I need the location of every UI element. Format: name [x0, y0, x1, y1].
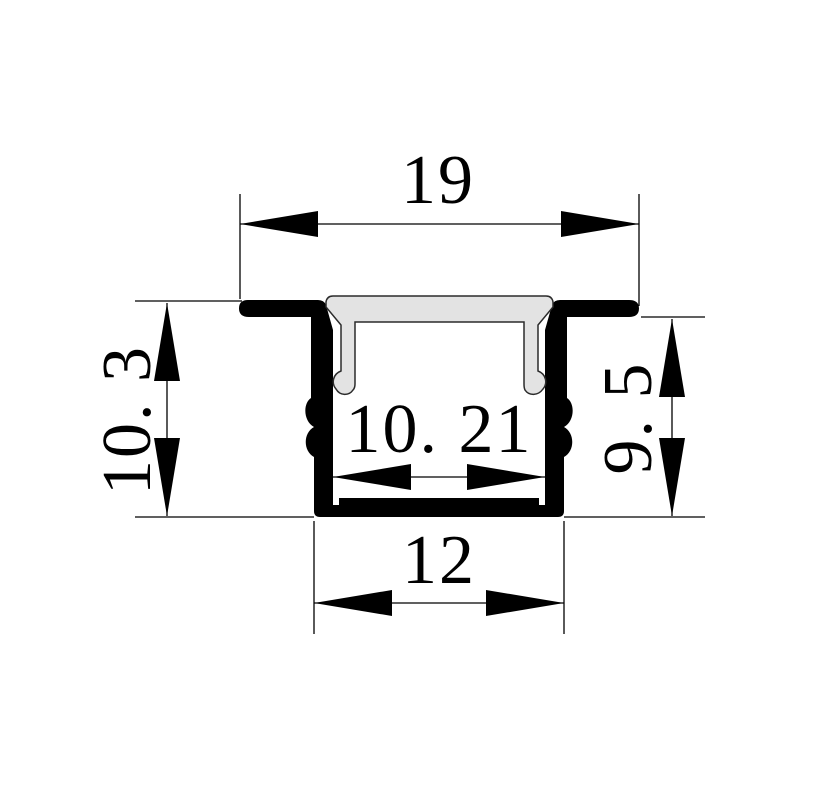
dimension-left-height: 10. 3 [89, 301, 314, 517]
arrow-left-icon [314, 590, 392, 616]
arrow-right-icon [486, 590, 564, 616]
dim-right-height-label: 9. 5 [590, 362, 667, 475]
dim-left-height-label: 10. 3 [89, 345, 166, 495]
arrow-left-icon [240, 211, 318, 237]
dim-top-width-label: 19 [401, 142, 475, 219]
dimension-bottom-width: 12 [314, 521, 564, 634]
profile-technical-drawing: 19 10. 21 10. 3 9. 5 [0, 0, 814, 804]
dimension-top-width: 19 [240, 142, 639, 306]
arrow-right-icon [561, 211, 639, 237]
dim-inner-width-label: 10. 21 [346, 391, 533, 468]
dim-bottom-width-label: 12 [402, 522, 476, 599]
drawing-canvas: 19 10. 21 10. 3 9. 5 [0, 0, 814, 804]
dimension-right-height: 9. 5 [564, 317, 705, 517]
dimension-inner-width: 10. 21 [333, 391, 545, 490]
diffuser-cover [326, 296, 553, 394]
